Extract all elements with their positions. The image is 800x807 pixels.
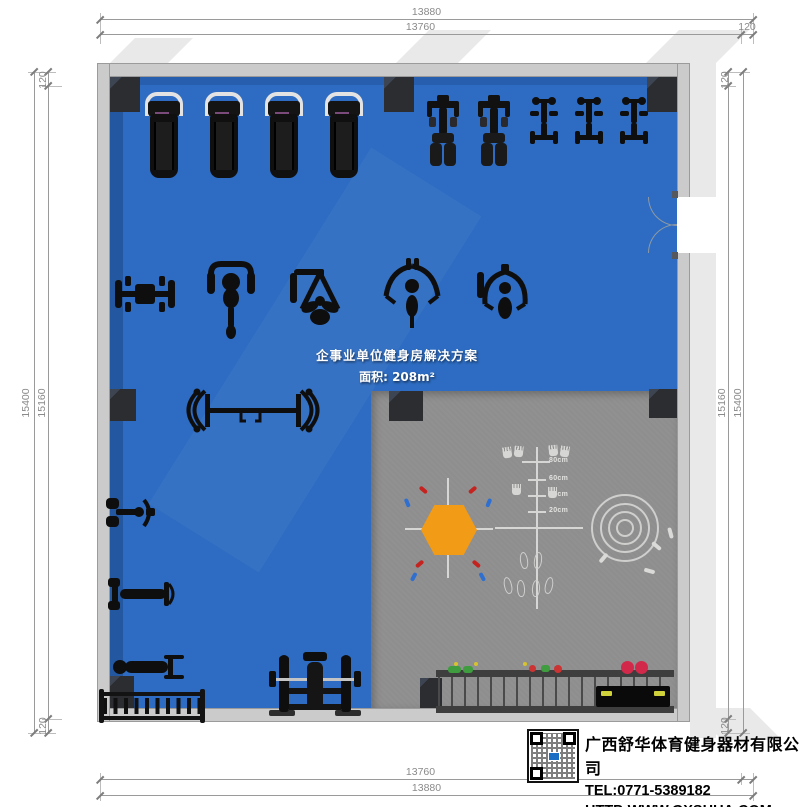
accessory-storage-rack-icon [436, 670, 674, 718]
seated-row-machine-icon [113, 272, 177, 316]
weight-yellow [454, 662, 458, 666]
ruler-tick [528, 495, 546, 497]
dim-value: 120 [730, 21, 764, 33]
dim-line [100, 34, 753, 35]
ruler-tick [528, 511, 546, 513]
recumbent-bike-icon [426, 93, 460, 169]
ball-red [529, 665, 536, 672]
column [389, 391, 423, 421]
dim-value: 15400 [732, 381, 744, 425]
leg-curl-machine-icon [106, 496, 156, 530]
marking-line [495, 527, 583, 529]
ball-red [554, 665, 562, 673]
wall-top [97, 63, 690, 77]
treadmill-belt [274, 122, 294, 170]
dim-value: 15400 [20, 381, 32, 425]
dim-value: 120 [37, 67, 49, 93]
kettlebell-green [541, 665, 550, 672]
treadmill-deck [270, 114, 298, 178]
column [649, 389, 677, 418]
kettlebell-green [448, 666, 461, 673]
multi-press-machine-icon [473, 262, 535, 326]
kettlebell-green [463, 666, 473, 673]
qr-logo [548, 752, 560, 761]
treadmill-icon [325, 92, 363, 178]
upright-trainer-icon [619, 95, 649, 147]
hand-print-icon [548, 491, 557, 498]
door-jamb [672, 252, 678, 259]
lat-pulldown-machine-icon [203, 260, 259, 340]
qr-code [527, 729, 579, 783]
rack-post [99, 689, 104, 723]
hand-print-icon [560, 449, 570, 457]
column [110, 77, 140, 112]
upright-trainer-icon [574, 95, 604, 147]
treadmill-deck [210, 114, 238, 178]
wall-shadow [690, 45, 716, 738]
weight-yellow [523, 662, 527, 666]
rack-post [200, 689, 205, 723]
treadmill-icon [205, 92, 243, 178]
black-mat [596, 686, 670, 707]
hand-print-icon [549, 449, 559, 457]
ruler-label: 80cm [549, 457, 568, 464]
ruler-label: 20cm [549, 507, 568, 514]
company-name: 广西舒华体育健身器材有限公司 [585, 731, 800, 779]
hand-print-icon [512, 488, 521, 495]
dumbbell-rack-icon [101, 692, 203, 720]
wall-left [97, 63, 110, 722]
medicine-ball-red [621, 661, 634, 674]
door-opening [677, 197, 716, 253]
dim-line [48, 72, 49, 733]
flat-bench-icon [112, 653, 188, 681]
plan-title: 企事业单位健身房解决方案 [277, 345, 517, 364]
pec-deck-machine-icon [286, 265, 348, 327]
column [110, 389, 136, 421]
company-website: HTTP:WWW.GXSHUA.COM [585, 803, 800, 807]
qr-eye [530, 732, 543, 745]
dim-value: 120 [719, 67, 731, 93]
cable-arm-machine-icon [378, 256, 446, 332]
dim-value: 15160 [36, 381, 48, 425]
ruler-label: 60cm [549, 475, 568, 482]
column [384, 77, 414, 112]
company-tel: TEL:0771-5389182 [585, 783, 800, 799]
company-info: 广西舒华体育健身器材有限公司 TEL:0771-5389182 HTTP:WWW… [585, 731, 800, 807]
target-ring [616, 519, 634, 537]
qr-eye [530, 767, 543, 780]
treadmill-icon [145, 92, 183, 178]
dim-value: 15160 [716, 381, 728, 425]
ruler-tick [528, 479, 546, 481]
upright-trainer-icon [529, 95, 559, 147]
column [647, 77, 677, 112]
treadmill-belt [214, 122, 234, 170]
adjustable-bench-icon [106, 576, 184, 612]
dim-value: 13760 [100, 21, 741, 33]
rack-rail [436, 706, 674, 713]
wall-right [677, 63, 690, 722]
dim-value: 13880 [100, 6, 753, 18]
treadmill-deck [330, 114, 358, 178]
mat-mark [601, 691, 612, 696]
dim-line [100, 19, 753, 20]
dim-value: 120 [37, 713, 49, 739]
floor-plan-canvas: 13880 13760 120 13760 13880 15400 15160 … [0, 0, 800, 807]
ruler-tick [522, 461, 550, 463]
dim-line [728, 72, 729, 733]
treadmill-belt [154, 122, 174, 170]
plan-area-label: 面积: 208m² [277, 368, 517, 385]
recumbent-bike-icon [477, 93, 511, 169]
weight-yellow [474, 662, 478, 666]
cable-crossover-icon [175, 388, 331, 433]
medicine-ball-red [635, 661, 648, 674]
treadmill-icon [265, 92, 303, 178]
hand-print-icon [514, 450, 524, 458]
bench-press-rack-icon [269, 652, 361, 720]
dumbbells [103, 698, 201, 714]
dim-line [34, 72, 35, 733]
wall-shadow [110, 38, 193, 63]
treadmill-belt [334, 122, 354, 170]
qr-eye [563, 732, 576, 745]
mat-mark [654, 691, 665, 696]
treadmill-deck [150, 114, 178, 178]
